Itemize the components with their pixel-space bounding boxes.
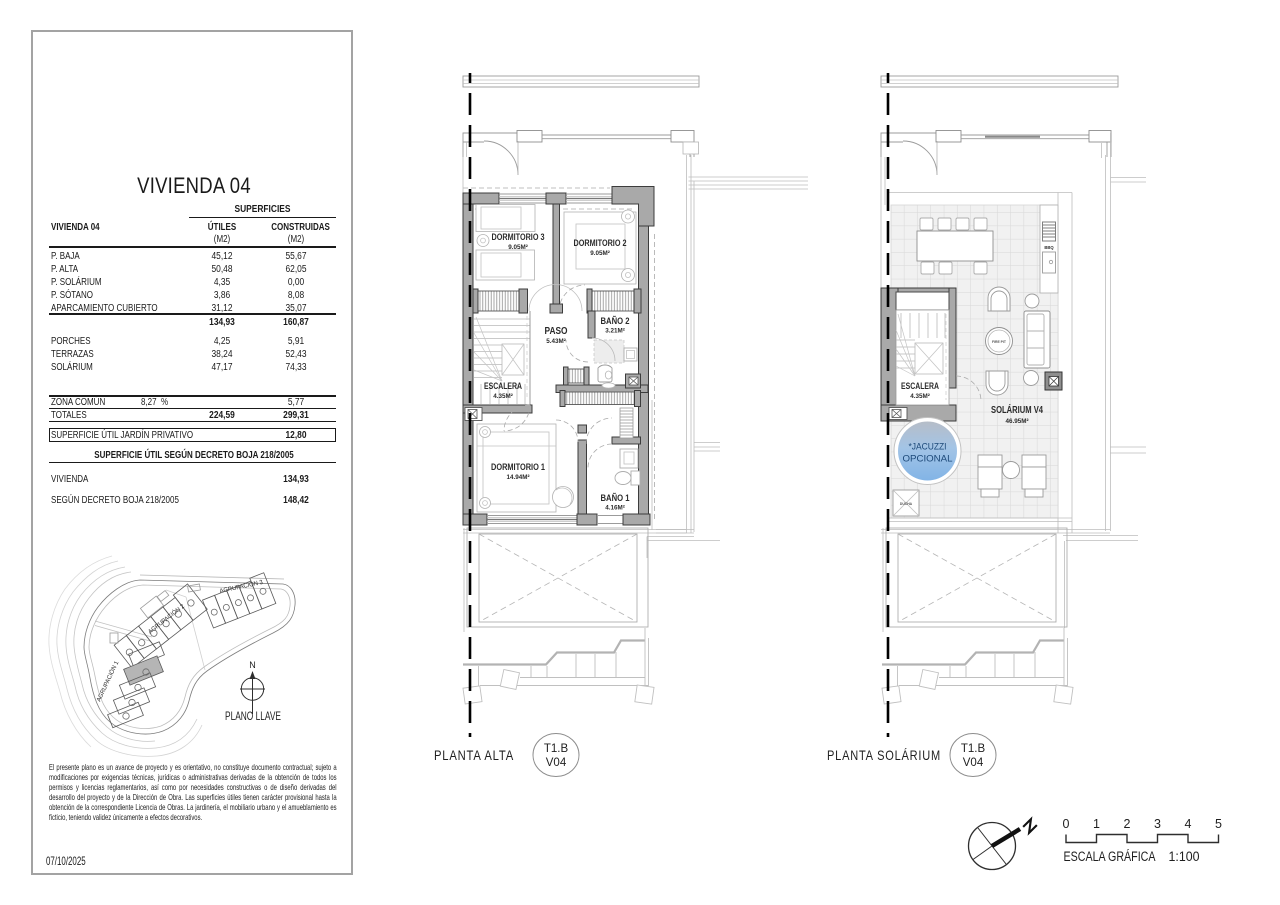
svg-text:T1.B: T1.B <box>961 743 986 755</box>
svg-text:2: 2 <box>1124 817 1131 831</box>
svg-text:AGRUPACIÓN 1: AGRUPACIÓN 1 <box>95 660 120 703</box>
svg-text:*JACUZZI: *JACUZZI <box>909 442 947 453</box>
svg-text:N: N <box>249 660 256 670</box>
svg-text:FIRE PIT: FIRE PIT <box>992 340 1007 344</box>
svg-text:4.35M²: 4.35M² <box>493 393 513 400</box>
svg-text:4.35M²: 4.35M² <box>910 393 930 400</box>
svg-text:1: 1 <box>1093 817 1100 831</box>
svg-text:4.16M²: 4.16M² <box>605 505 625 512</box>
svg-text:3.21M²: 3.21M² <box>605 328 625 335</box>
svg-text:9.05M²: 9.05M² <box>590 250 610 257</box>
svg-text:1:100: 1:100 <box>1169 849 1200 864</box>
svg-text:PLANO LLAVE: PLANO LLAVE <box>225 711 281 723</box>
svg-text:OPCIONAL: OPCIONAL <box>903 454 954 465</box>
svg-text:SOLÁRIUM V4: SOLÁRIUM V4 <box>991 404 1043 416</box>
svg-text:BAÑO 1: BAÑO 1 <box>601 493 630 503</box>
svg-text:DUCHA: DUCHA <box>900 502 913 506</box>
svg-text:14.94M²: 14.94M² <box>506 474 529 481</box>
svg-text:BBQ: BBQ <box>1044 245 1054 250</box>
svg-text:V04: V04 <box>963 757 984 769</box>
svg-text:PLANTA ALTA: PLANTA ALTA <box>434 747 514 763</box>
svg-text:DORMITORIO 1: DORMITORIO 1 <box>491 462 545 472</box>
svg-text:T1.B: T1.B <box>544 743 569 755</box>
svg-text:ESCALA GRÁFICA: ESCALA GRÁFICA <box>1064 849 1156 864</box>
svg-text:DORMITORIO 3: DORMITORIO 3 <box>492 232 545 242</box>
svg-text:PLANTA SOLÁRIUM: PLANTA SOLÁRIUM <box>827 747 941 763</box>
svg-text:V04: V04 <box>546 757 567 769</box>
svg-text:ESCALERA: ESCALERA <box>484 381 522 391</box>
svg-text:PASO: PASO <box>545 326 568 337</box>
svg-text:0: 0 <box>1063 817 1070 831</box>
svg-text:9.05M²: 9.05M² <box>508 244 528 251</box>
svg-text:DORMITORIO 2: DORMITORIO 2 <box>574 238 627 248</box>
svg-text:3: 3 <box>1154 817 1161 831</box>
svg-text:5: 5 <box>1215 817 1222 831</box>
svg-text:46.95M²: 46.95M² <box>1005 418 1028 425</box>
svg-text:5.43M²: 5.43M² <box>546 338 566 345</box>
svg-text:4: 4 <box>1185 817 1192 831</box>
svg-text:ESCALERA: ESCALERA <box>901 381 939 391</box>
svg-text:BAÑO 2: BAÑO 2 <box>601 316 630 326</box>
